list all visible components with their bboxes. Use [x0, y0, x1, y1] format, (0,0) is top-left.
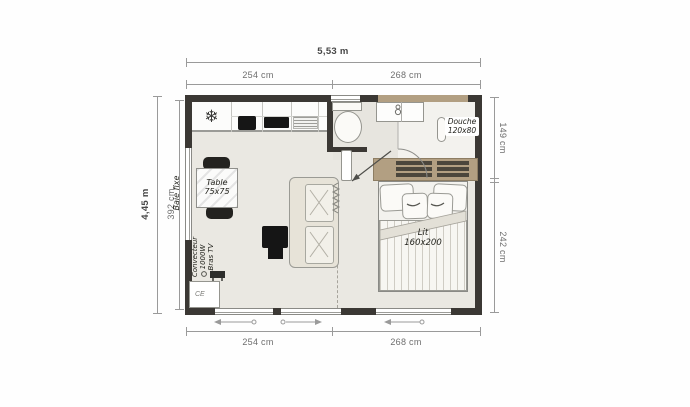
- heater-label-line1: Convecteur: [191, 232, 199, 282]
- top-window: [331, 95, 360, 102]
- cabinet-divider-3: [291, 102, 292, 132]
- dim-tick: [332, 327, 333, 336]
- dim-tick: [480, 58, 481, 67]
- dim-tick: [153, 96, 162, 97]
- sofa-cushion-1: [305, 184, 334, 222]
- tv-bracket: [268, 248, 283, 259]
- dim-tick: [332, 80, 333, 89]
- dim-right-seg1-text: 149 cm: [498, 122, 508, 153]
- bed-pillow-front-right: [427, 193, 454, 220]
- dim-right-seg2-label: 242 cm: [497, 223, 509, 271]
- bottom-window-1: [215, 308, 273, 315]
- dim-tick: [480, 327, 481, 336]
- ce-mark: CE: [195, 291, 205, 298]
- kitchen-hob: [264, 117, 289, 128]
- dim-line-top-segments: [186, 84, 481, 85]
- ce-mark-text: CE: [195, 291, 205, 298]
- table-label-size: 75x75: [198, 187, 236, 196]
- left-bay-window: [185, 148, 192, 240]
- washbasin-divider: [401, 102, 402, 122]
- bed-pillow-front-left: [402, 193, 429, 220]
- dim-bottom-seg1-label: 254 cm: [226, 337, 290, 347]
- kitchen-vent-grille: [293, 116, 318, 129]
- dim-tick: [480, 80, 481, 89]
- tv-screen: [262, 226, 288, 248]
- dim-bottom-seg2-label: 268 cm: [374, 337, 438, 347]
- kitchen-sink: [238, 116, 256, 130]
- bay-window-label: Baie fixe: [170, 168, 184, 218]
- bottom-window-3: [376, 308, 451, 315]
- bathroom-door-leaf: [341, 150, 352, 181]
- wall-top-wood-segment: [378, 95, 468, 102]
- headboard-slats-1: [396, 161, 432, 178]
- toilet-cistern: [332, 102, 362, 111]
- dim-tick: [490, 182, 499, 183]
- dim-tick: [186, 58, 187, 67]
- heater-label: Convecteur 1000W Bras TV: [191, 232, 223, 282]
- cabinet-divider-1: [231, 102, 232, 132]
- dim-line-bottom: [186, 331, 481, 332]
- dim-line-top-total: [186, 62, 481, 63]
- shower-label: Douche 120x80: [445, 117, 479, 136]
- bay-window-label-text: Baie fixe: [172, 176, 181, 211]
- bed-label-size: 160x200: [393, 239, 453, 249]
- heater-label-line2: 1000W: [199, 232, 207, 282]
- shower-label-size: 120x80: [445, 127, 479, 136]
- bottom-window-2: [281, 308, 341, 315]
- dim-top-seg1-label: 254 cm: [226, 70, 290, 80]
- table-label-name: Table: [198, 178, 236, 187]
- sofa-cushion-2: [305, 226, 334, 264]
- dim-left-total-text: 4,45 m: [140, 188, 151, 219]
- dim-tick: [186, 80, 187, 89]
- dim-top-seg2-label: 268 cm: [374, 70, 438, 80]
- table-label: Table 75x75: [198, 178, 236, 196]
- dim-tick: [490, 178, 499, 179]
- bed-label: Lit 160x200: [393, 229, 453, 249]
- heater-label-line3: Bras TV: [207, 232, 215, 282]
- dim-tick: [153, 313, 162, 314]
- dim-line-left-total: [157, 96, 158, 314]
- cabinet-divider-2: [262, 102, 263, 132]
- floorplan-canvas: ❄: [0, 0, 690, 407]
- snowflake-glyph: ❄: [204, 107, 218, 127]
- dim-tick: [175, 100, 184, 101]
- dim-tick: [490, 97, 499, 98]
- dim-top-total-label: 5,53 m: [300, 46, 366, 57]
- dim-tick: [175, 309, 184, 310]
- toilet-bowl: [334, 111, 362, 143]
- dim-right-seg1-label: 149 cm: [497, 114, 509, 162]
- cabinet-divider-4: [318, 102, 319, 132]
- dim-left-total-label: 4,45 m: [139, 180, 151, 228]
- dim-line-right: [494, 97, 495, 313]
- fridge-snowflake-icon: ❄: [192, 102, 231, 132]
- dim-tick: [490, 312, 499, 313]
- dim-right-seg2-text: 242 cm: [498, 231, 508, 262]
- headboard-slats-2: [437, 161, 469, 178]
- dim-tick: [186, 327, 187, 336]
- washbasin-vanity: [376, 102, 424, 122]
